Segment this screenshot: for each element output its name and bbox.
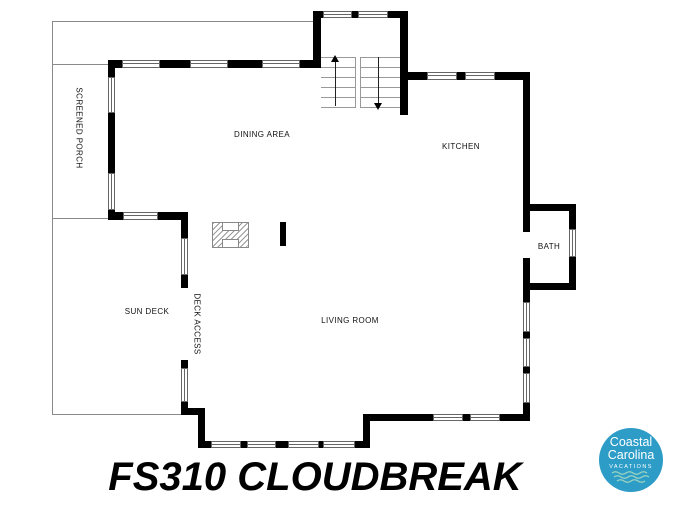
room-label-screened-porch: SCREENED PORCH (75, 87, 84, 168)
porch-divider-upper (52, 64, 108, 65)
stair-divider (355, 57, 361, 108)
window-symbol (123, 212, 158, 220)
stair-treads-right (360, 57, 400, 108)
column-stub (280, 222, 286, 246)
fireplace-symbol (212, 222, 249, 248)
fireplace-opening-bottom (222, 239, 239, 248)
window-symbol (523, 338, 530, 367)
wall-segment (181, 212, 188, 238)
stair-up-arrow (331, 55, 339, 62)
room-label-sun-deck: SUN DECK (87, 307, 207, 316)
floor-plan: DINING AREA KITCHEN LIVING ROOM SUN DECK… (0, 0, 683, 512)
wall-segment (523, 258, 530, 283)
window-symbol (288, 441, 319, 448)
window-symbol (190, 60, 228, 68)
window-symbol (523, 373, 530, 403)
window-symbol (523, 302, 530, 332)
window-symbol (323, 441, 355, 448)
wall-segment (181, 402, 188, 415)
coastal-carolina-logo: Coastal Carolina VACATIONS (599, 428, 663, 492)
wall-segment (181, 275, 188, 288)
porch-divider-lower (52, 218, 108, 219)
window-symbol (108, 77, 115, 113)
window-symbol (433, 414, 463, 421)
window-symbol (427, 72, 457, 80)
window-symbol (122, 60, 160, 68)
window-symbol (465, 72, 495, 80)
room-label-living-room: LIVING ROOM (290, 316, 410, 325)
room-label-bath: BATH (519, 242, 579, 251)
room-label-kitchen: KITCHEN (401, 142, 521, 151)
window-symbol (211, 441, 241, 448)
window-symbol (323, 11, 352, 18)
sun-deck-bottom-line (52, 414, 199, 415)
stair-up-line (335, 60, 336, 106)
window-symbol (262, 60, 300, 68)
wall-segment (181, 360, 188, 368)
stair-down-line (378, 57, 379, 104)
wall-segment (523, 283, 576, 290)
logo-text-vacations: VACATIONS (599, 464, 663, 470)
waves-icon (610, 471, 652, 484)
logo-text-carolina: Carolina (599, 449, 663, 462)
window-symbol (108, 173, 115, 210)
plan-title: FS310 CLOUDBREAK (55, 455, 575, 500)
wall-segment (523, 211, 530, 232)
window-symbol (247, 441, 276, 448)
stair-down-arrow (374, 103, 382, 110)
stair-treads-left (321, 57, 355, 108)
wall-segment (313, 11, 321, 68)
deck-outline-top (52, 21, 313, 22)
window-symbol (181, 238, 188, 275)
window-symbol (470, 414, 500, 421)
wall-segment (523, 72, 530, 211)
fireplace-opening-top (222, 222, 239, 231)
window-symbol (358, 11, 388, 18)
window-symbol (181, 368, 188, 402)
wall-segment (400, 11, 408, 115)
room-label-dining-area: DINING AREA (202, 130, 322, 139)
room-label-deck-access: DECK ACCESS (193, 293, 202, 354)
